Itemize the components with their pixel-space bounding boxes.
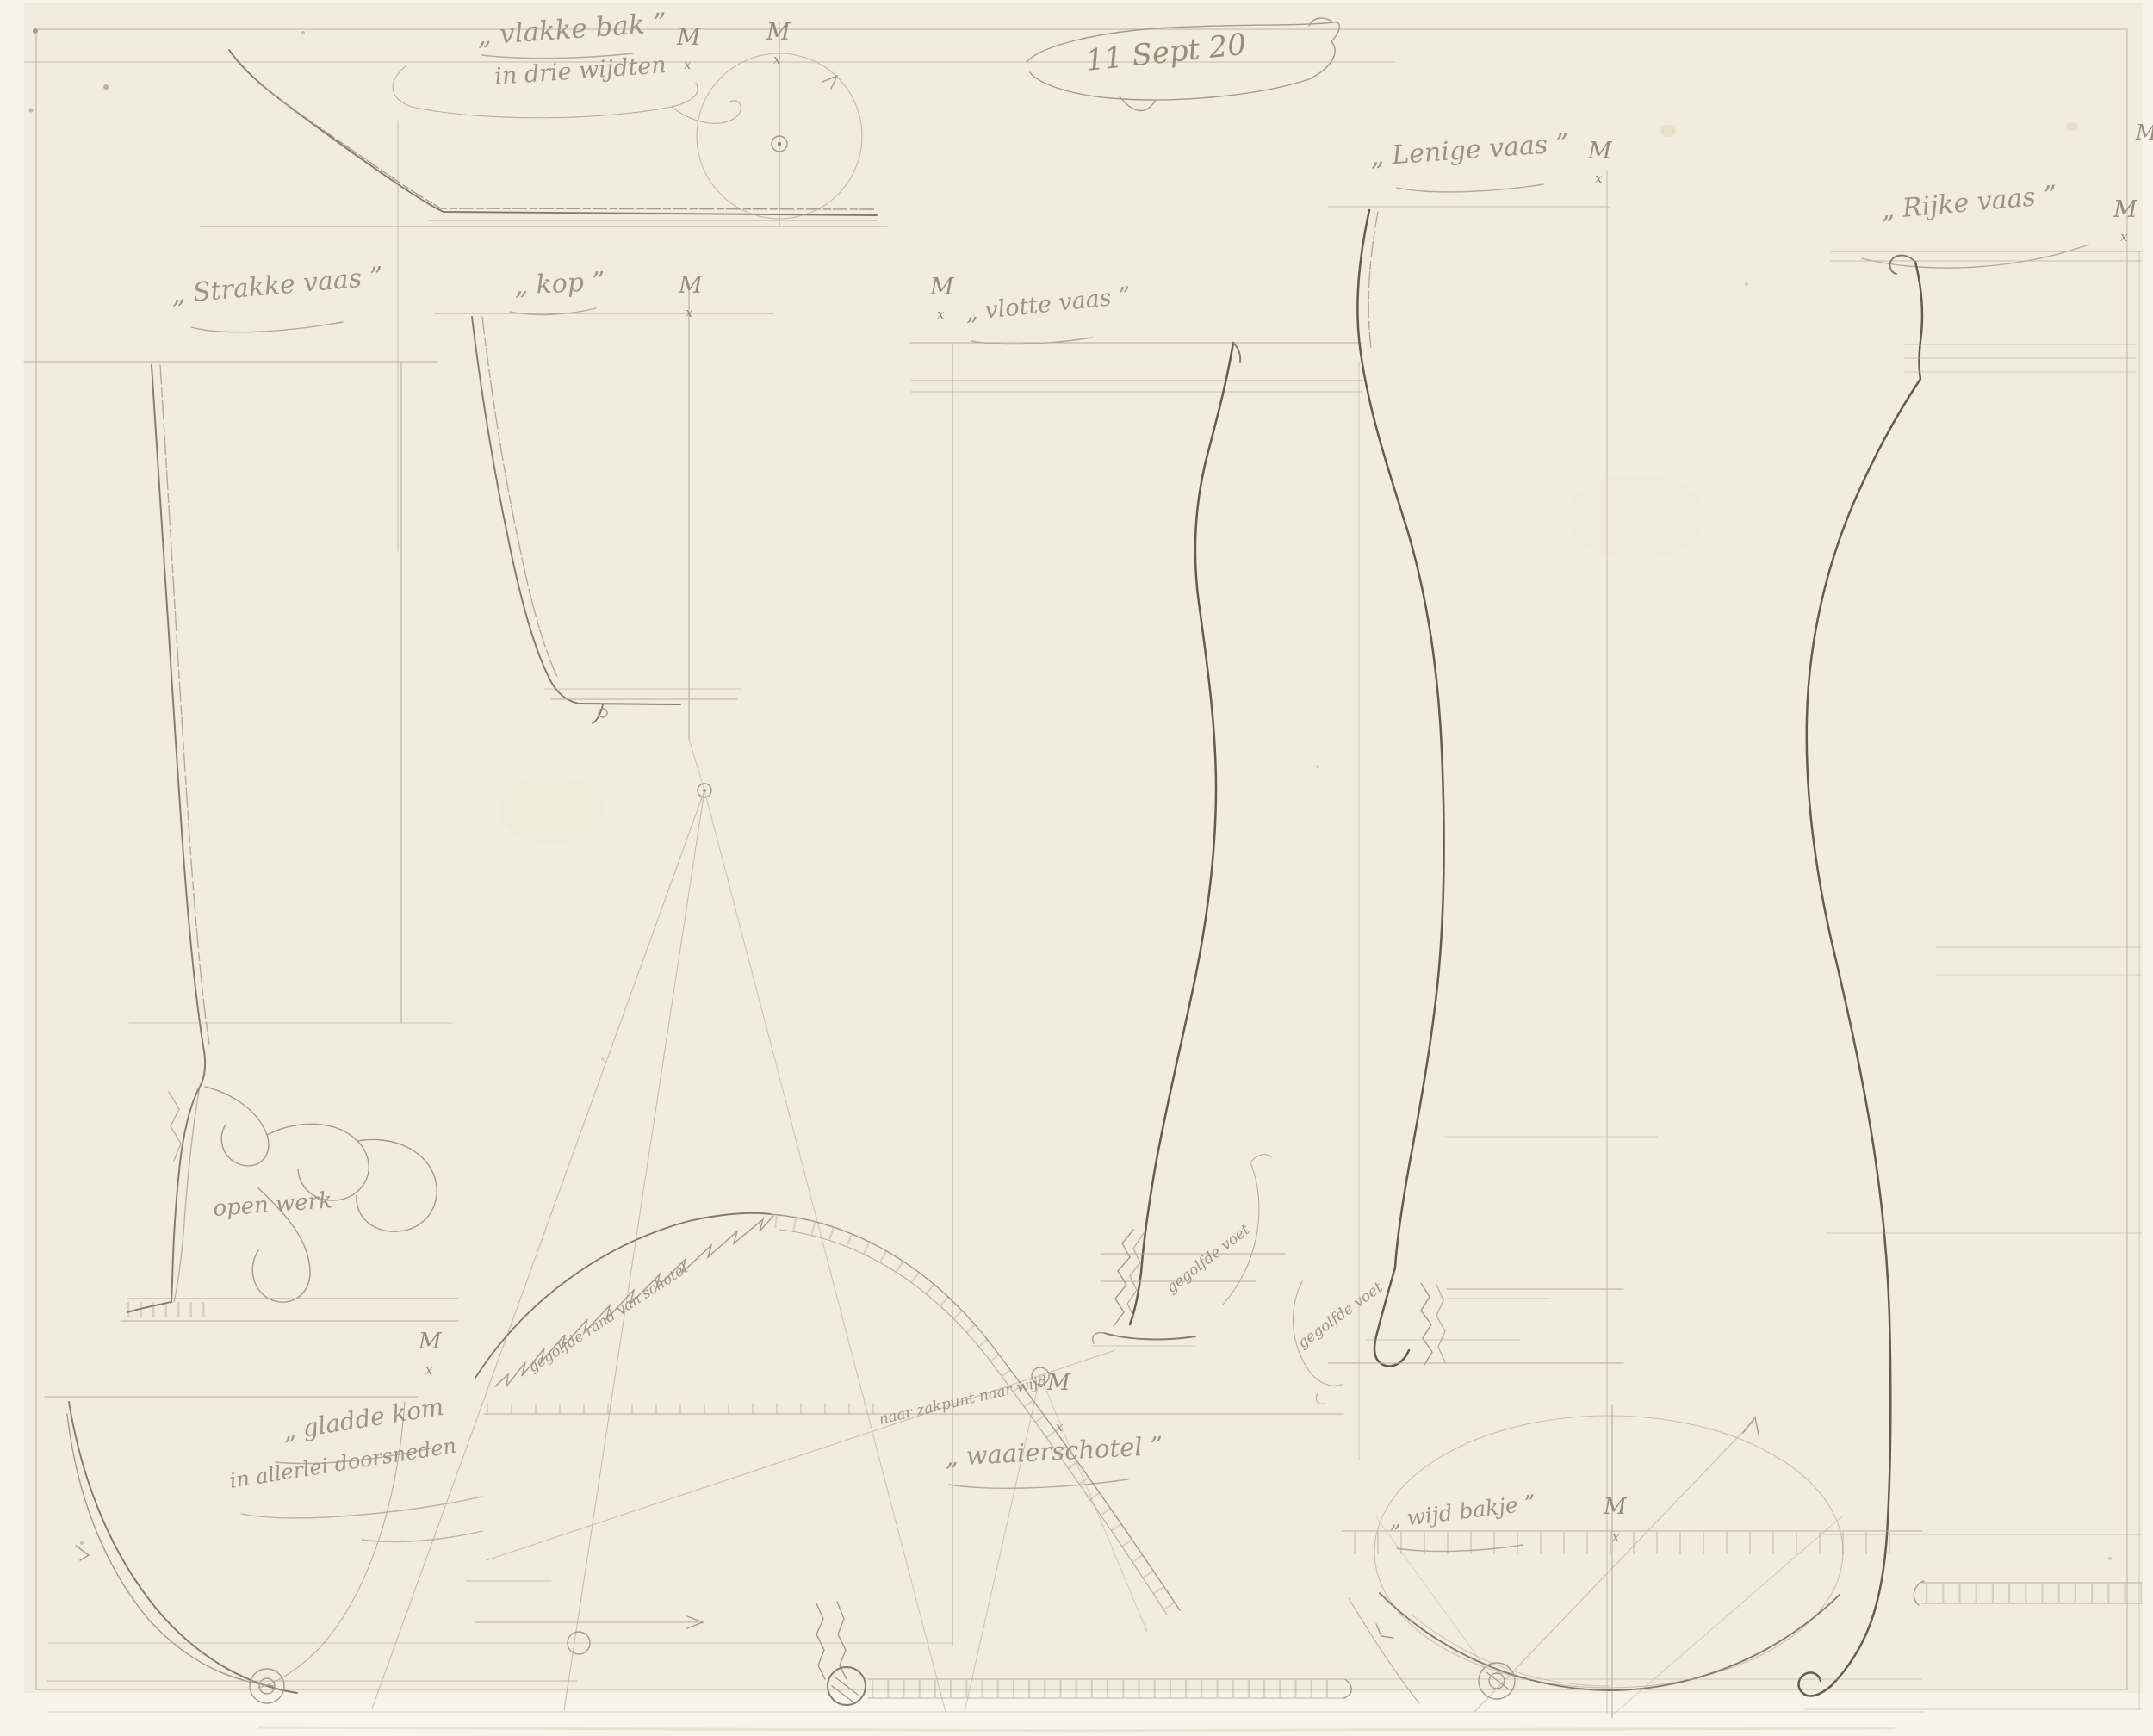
measure-mark-x: x <box>1595 170 1603 186</box>
measure-mark-m: M <box>2113 196 2138 223</box>
measure-mark-m: M <box>1046 1370 1071 1396</box>
measure-mark-m: M <box>1587 138 1613 164</box>
measure-mark-x: x <box>425 1362 433 1378</box>
measure-mark-x: x <box>1056 1419 1064 1435</box>
measure-mark: M <box>2135 121 2153 145</box>
measure-mark-x: x <box>684 57 692 72</box>
measure-mark-x: x <box>1612 1529 1620 1545</box>
measure-mark-m: M <box>2135 121 2153 145</box>
measure-mark-x: x <box>773 52 781 67</box>
measure-mark-x: x <box>2120 229 2128 245</box>
paper-bottom-edge-shadow <box>258 1727 1895 1731</box>
pencil-design-sheet: 11 Sept 20 „ vlakke bak ” in drie wijdte… <box>0 0 2153 1736</box>
measure-mark-m: M <box>1603 1494 1628 1520</box>
measure-mark-m: M <box>678 272 704 299</box>
measure-mark-m: M <box>676 24 702 51</box>
measure-mark-m: M <box>418 1329 443 1355</box>
measure-mark-x: x <box>686 305 693 320</box>
measure-mark-x: x <box>937 307 945 322</box>
label-kop: „ kop ” <box>514 267 606 301</box>
measure-mark-m: M <box>929 274 955 301</box>
measure-mark-m: M <box>766 19 791 46</box>
